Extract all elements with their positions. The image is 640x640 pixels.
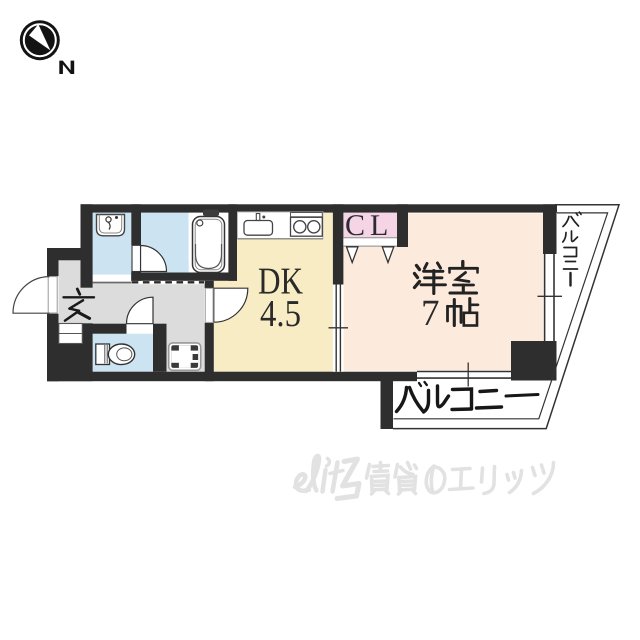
svg-text:CL: CL <box>345 209 393 242</box>
svg-text:4.5: 4.5 <box>260 293 301 335</box>
svg-text:7: 7 <box>421 293 440 334</box>
